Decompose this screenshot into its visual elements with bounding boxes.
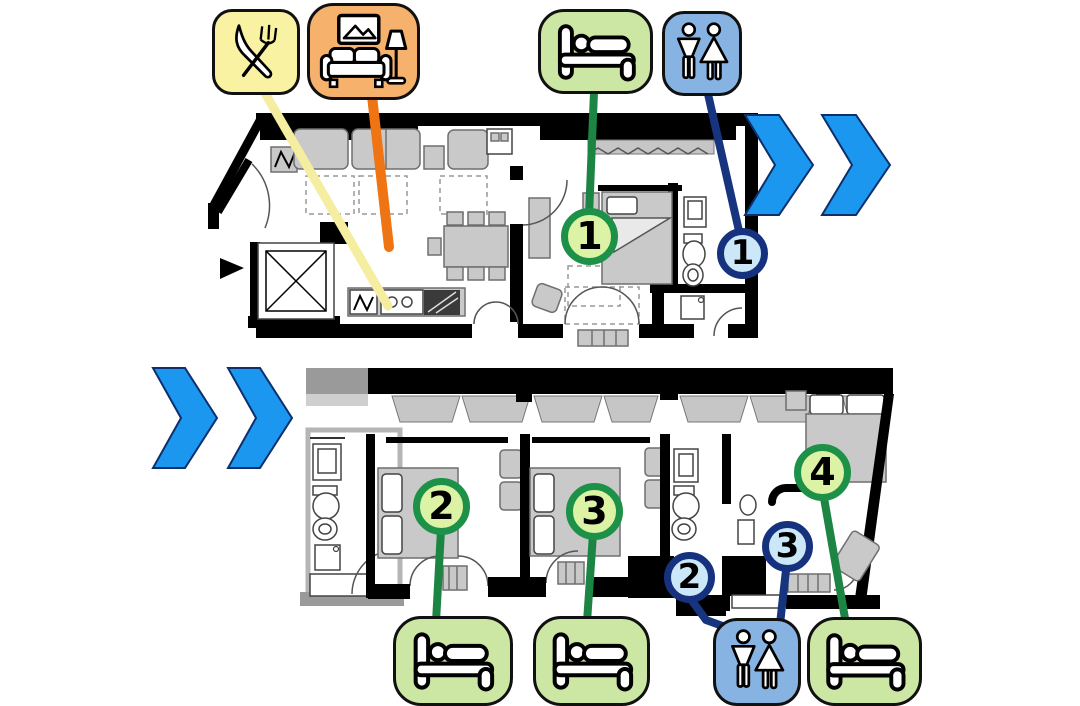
bedroom-marker-4: 4 xyxy=(794,444,851,501)
kitchen-counter xyxy=(348,288,465,316)
bedroom-marker-3-label: 3 xyxy=(581,489,607,533)
bed-icon xyxy=(553,21,639,83)
legend-living-room-badge xyxy=(307,3,420,100)
bed-icon xyxy=(821,630,909,693)
legend-bedroom-4-badge xyxy=(807,617,922,706)
bedroom-marker-1-label: 1 xyxy=(576,214,602,258)
floor-plan-figure: 1 2 3 4 1 2 3 xyxy=(0,0,1080,706)
bedroom-marker-1: 1 xyxy=(561,208,618,265)
toilet-marker-1: 1 xyxy=(717,228,768,279)
entrance-arrow xyxy=(220,258,244,279)
floor-plan-upper xyxy=(208,113,758,346)
connector-bedroom-2 xyxy=(436,530,441,622)
wc-icon xyxy=(727,626,787,698)
legend-bedroom-1-badge xyxy=(538,9,653,94)
toilet-marker-3-label: 3 xyxy=(776,526,800,566)
chevrons-left xyxy=(153,368,292,468)
legend-bedroom-2-badge xyxy=(393,616,513,706)
chevrons-right xyxy=(745,115,890,215)
bed-icon xyxy=(408,629,498,693)
bathroom-1-fixtures xyxy=(683,197,706,286)
bedroom-marker-3: 3 xyxy=(566,483,623,540)
sofa-lamp-icon xyxy=(316,12,412,92)
legend-toilet-lower-badge xyxy=(713,618,801,706)
toilet-marker-2-label: 2 xyxy=(678,557,702,597)
wc-icon xyxy=(673,19,731,89)
legend-toilet-1-badge xyxy=(662,11,742,96)
legend-dining-badge xyxy=(212,9,300,95)
elevator xyxy=(258,243,334,319)
floor-plan-canvas xyxy=(0,0,1080,706)
connector-toilet-3 xyxy=(780,570,786,624)
legend-bedroom-3-badge xyxy=(533,616,650,706)
dining-table xyxy=(428,212,508,280)
connector-bedroom-1 xyxy=(589,92,594,216)
bedroom-marker-2: 2 xyxy=(413,478,470,535)
bed-icon xyxy=(547,629,637,693)
bedroom-marker-2-label: 2 xyxy=(428,484,454,528)
toilet-marker-2: 2 xyxy=(664,552,715,603)
bedroom-marker-4-label: 4 xyxy=(809,450,835,494)
toilet-marker-3: 3 xyxy=(762,521,813,572)
toilet-marker-1-label: 1 xyxy=(731,233,755,273)
fork-knife-icon xyxy=(225,21,287,83)
